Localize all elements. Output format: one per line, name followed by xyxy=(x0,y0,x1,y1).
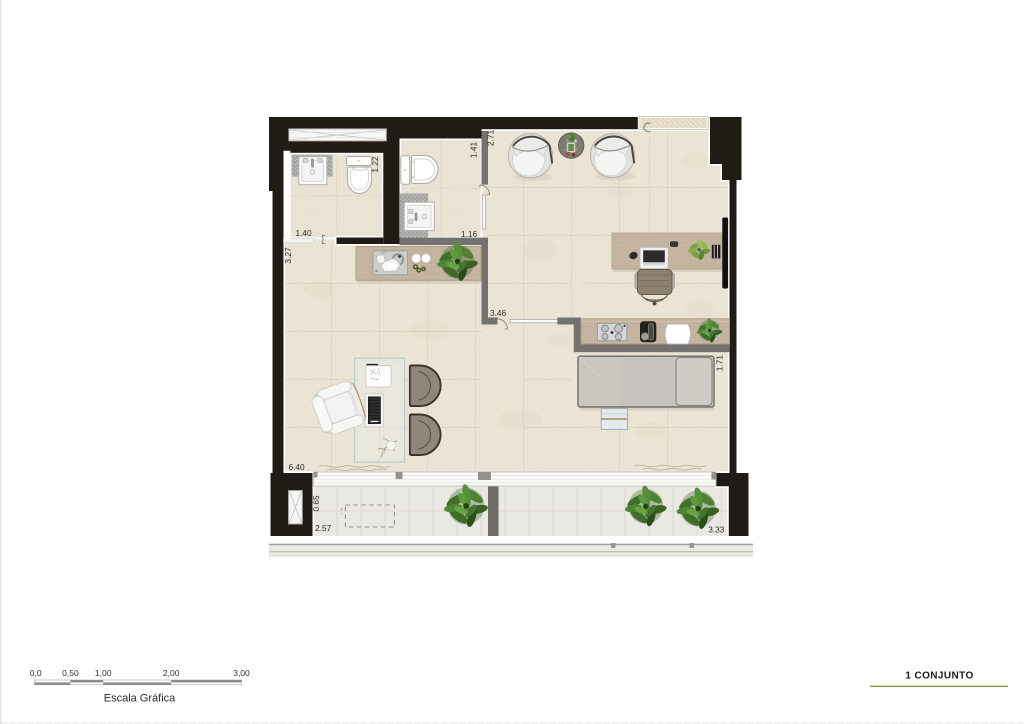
svg-text:3.46: 3.46 xyxy=(490,308,507,318)
svg-text:1.16: 1.16 xyxy=(461,229,478,239)
svg-text:1 CONJUNTO: 1 CONJUNTO xyxy=(905,671,973,682)
svg-text:6.40: 6.40 xyxy=(289,462,306,472)
svg-text:1.41: 1.41 xyxy=(469,142,479,159)
svg-text:Escala Gráfica: Escala Gráfica xyxy=(104,693,176,705)
svg-text:0,50: 0,50 xyxy=(62,668,79,678)
svg-text:2.71: 2.71 xyxy=(486,130,496,147)
svg-text:1.40: 1.40 xyxy=(296,228,313,238)
svg-text:2,00: 2,00 xyxy=(163,668,180,678)
svg-text:1,00: 1,00 xyxy=(95,668,112,678)
svg-text:3.27: 3.27 xyxy=(283,247,293,264)
svg-text:1.22: 1.22 xyxy=(370,156,380,173)
svg-text:0.65: 0.65 xyxy=(311,495,321,512)
svg-text:0,0: 0,0 xyxy=(30,668,42,678)
svg-text:3.33: 3.33 xyxy=(708,525,725,535)
svg-text:3,00: 3,00 xyxy=(233,668,250,678)
svg-text:2.57: 2.57 xyxy=(315,523,332,533)
svg-text:1.71: 1.71 xyxy=(715,355,725,372)
